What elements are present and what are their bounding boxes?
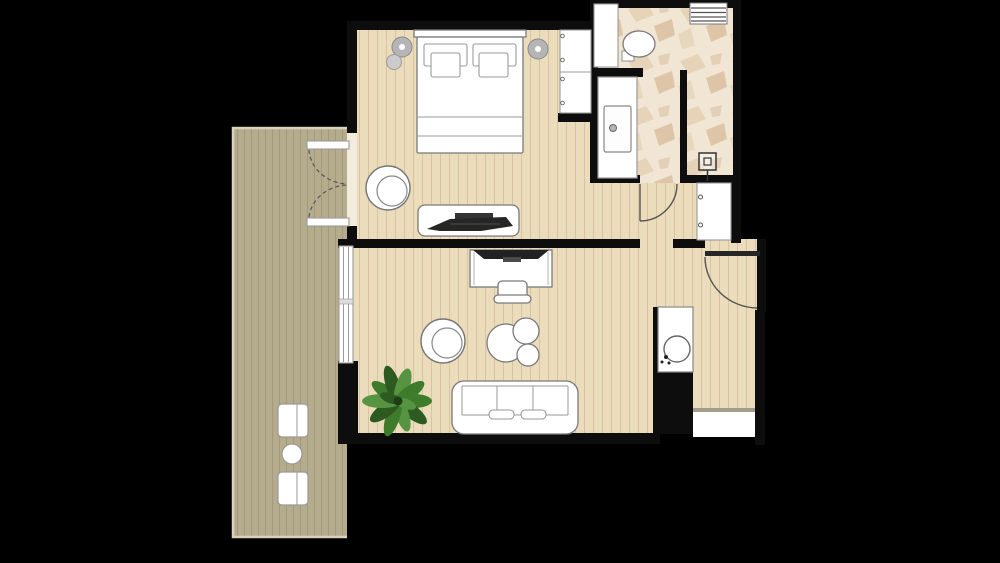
armchair-seat bbox=[432, 328, 462, 358]
round-armchair bbox=[421, 319, 465, 363]
wardrobe-handle-icon bbox=[561, 58, 565, 62]
lamp-base-icon bbox=[387, 55, 402, 70]
closet-handle-icon bbox=[699, 195, 703, 199]
coffee-table-small bbox=[517, 344, 539, 366]
window-mullion bbox=[339, 299, 353, 304]
sofa-pillow bbox=[489, 410, 514, 419]
shower-divider-wall bbox=[680, 70, 687, 177]
wardrobe-handle-icon bbox=[561, 101, 565, 105]
towel-radiator bbox=[690, 3, 727, 24]
desk-chair bbox=[494, 281, 531, 303]
washbasin-counter bbox=[658, 307, 693, 372]
lamp-center-dot bbox=[535, 46, 541, 52]
sofa-body bbox=[452, 381, 578, 434]
pillow-right-inner bbox=[479, 53, 508, 77]
faucet-dot bbox=[668, 362, 671, 365]
floor-plan-drawing bbox=[0, 0, 1000, 563]
monitor-stand bbox=[503, 257, 521, 262]
hallway-closet bbox=[697, 183, 731, 240]
wardrobe-handle-icon bbox=[561, 77, 565, 81]
closet-side-wall bbox=[731, 183, 741, 243]
entry-right-wall-lower bbox=[755, 310, 765, 445]
wardrobe-end-wall bbox=[558, 113, 598, 122]
bathroom-bottom-wall-right bbox=[680, 175, 741, 183]
bathroom-right-wall bbox=[733, 0, 741, 183]
entry-door-leaf bbox=[705, 251, 760, 256]
bedroom-top-wall bbox=[348, 21, 598, 30]
service-shaft bbox=[594, 4, 618, 67]
niche-body bbox=[693, 408, 755, 437]
coffee-table-medium bbox=[513, 318, 539, 344]
toilet-bowl bbox=[623, 31, 655, 57]
closet-body bbox=[697, 183, 731, 240]
bedside-lamp-right bbox=[528, 39, 548, 59]
closet-handle-icon bbox=[699, 223, 703, 227]
outdoor-chair-bottom bbox=[278, 472, 308, 505]
faucet-dot bbox=[661, 361, 664, 364]
living-room-window bbox=[339, 246, 353, 363]
niche-edge bbox=[693, 408, 755, 412]
bedroom-tub-chair bbox=[366, 166, 410, 210]
wardrobe-handle-icon bbox=[561, 34, 565, 38]
entry-right-wall-upper bbox=[757, 239, 766, 312]
washbasin-bowl bbox=[664, 336, 690, 362]
faucet-icon bbox=[664, 355, 668, 359]
washbasin-back-wall bbox=[660, 372, 693, 434]
tv-console bbox=[418, 205, 519, 236]
outdoor-chair-body bbox=[278, 472, 308, 505]
balcony-door-leaf-bottom bbox=[307, 218, 349, 226]
plant-center bbox=[394, 397, 403, 406]
shower-drain-inner bbox=[704, 158, 711, 165]
outdoor-chair-body bbox=[278, 404, 308, 437]
double-bed bbox=[414, 30, 526, 153]
sink-drain-icon bbox=[610, 125, 617, 132]
sofa-pillow bbox=[521, 410, 546, 419]
hallway-floor bbox=[590, 183, 697, 248]
window-frame bbox=[339, 246, 353, 363]
chair-seat bbox=[377, 176, 407, 206]
wardrobe bbox=[560, 30, 591, 113]
lamp-center-dot bbox=[399, 44, 405, 50]
storage-niche bbox=[693, 408, 755, 437]
floor-plan-canvas bbox=[0, 0, 1000, 563]
sofa bbox=[452, 381, 578, 434]
living-room-left-wall bbox=[338, 361, 358, 444]
bedroom-living-divider-wall bbox=[338, 239, 640, 248]
pillow-left-inner bbox=[431, 53, 460, 77]
outdoor-chair-top bbox=[278, 404, 308, 437]
balcony-door-leaf-top bbox=[307, 141, 349, 149]
vanity bbox=[598, 77, 637, 178]
desk-chair-back bbox=[494, 295, 531, 303]
vanity-sink bbox=[604, 106, 631, 152]
toilet-nook-wall bbox=[596, 68, 643, 77]
entry-corridor-floor bbox=[693, 310, 757, 408]
outdoor-side-table bbox=[282, 444, 302, 464]
headboard bbox=[414, 30, 526, 37]
bedroom-left-wall-upper bbox=[347, 21, 357, 133]
